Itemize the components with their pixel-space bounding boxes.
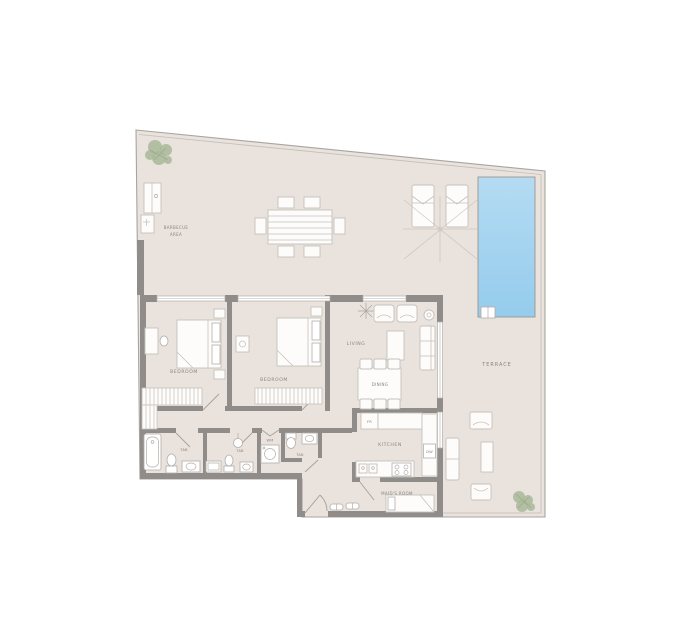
- toilet-icon: [286, 433, 296, 449]
- wardrobe-icon: [255, 388, 322, 404]
- maids-room-label: MAID'S ROOM: [381, 491, 413, 496]
- dishwasher-label: DW: [426, 450, 433, 454]
- toilet-icon: [166, 454, 177, 473]
- side-table-icon: [424, 310, 434, 320]
- desk-icon: [145, 328, 158, 354]
- sink-icon: [182, 461, 200, 472]
- nightstand-icon: [214, 309, 225, 318]
- bed-icon: [386, 495, 434, 512]
- coffee-table-icon: [387, 331, 404, 360]
- fridge-label: FR: [367, 420, 372, 424]
- sink-icon: [302, 433, 317, 444]
- nightstand-icon: [214, 370, 225, 379]
- pool-ladder-icon: [481, 307, 495, 318]
- kitchen-label: KITCHEN: [378, 442, 402, 448]
- bedroom1-label: BEDROOM: [170, 369, 198, 375]
- washing-machine-label: WM: [266, 439, 273, 443]
- outdoor-armchair-icon: [471, 484, 491, 500]
- bath1-label: TAB: [179, 448, 188, 452]
- shower-tray-icon: [206, 461, 221, 472]
- sink-icon: [240, 462, 253, 472]
- floor-plan: BARBECUE AREA TERRACE LIVING DINING BEDR…: [0, 0, 675, 640]
- armchair-icon: [374, 305, 394, 322]
- toilet-icon: [224, 455, 234, 472]
- sofa-icon: [420, 326, 435, 370]
- maids-room-furniture: [386, 495, 434, 512]
- bed-icon: [177, 320, 221, 368]
- plant-small-icon: [358, 303, 374, 319]
- stove-icon: [392, 463, 411, 476]
- bath3-label: TAB: [295, 453, 304, 457]
- dining-label: DINING: [372, 382, 389, 387]
- nightstand-icon: [311, 307, 322, 316]
- bedroom2-label: BEDROOM: [260, 377, 288, 383]
- outdoor-table-icon: [481, 442, 493, 472]
- armchair-icon: [397, 305, 417, 322]
- barbecue-area-label: BARBECUE: [164, 225, 189, 230]
- outdoor-armchair-icon: [470, 412, 492, 429]
- washing-machine-icon: [261, 445, 279, 463]
- living-label: LIVING: [347, 341, 366, 347]
- floor-plan-canvas: BARBECUE AREA TERRACE LIVING DINING BEDR…: [0, 0, 675, 640]
- desk-chair-icon: [160, 336, 168, 346]
- bath2-label: TAB: [235, 449, 244, 453]
- barbecue-area-label: AREA: [170, 232, 182, 237]
- swimming-pool: [478, 177, 535, 318]
- bed-icon: [277, 318, 321, 366]
- terrace-label: TERRACE: [481, 362, 511, 368]
- bathtub-icon: [144, 434, 161, 470]
- lamp-table-icon: [236, 336, 249, 352]
- kitchen-counter-icon: [378, 413, 422, 429]
